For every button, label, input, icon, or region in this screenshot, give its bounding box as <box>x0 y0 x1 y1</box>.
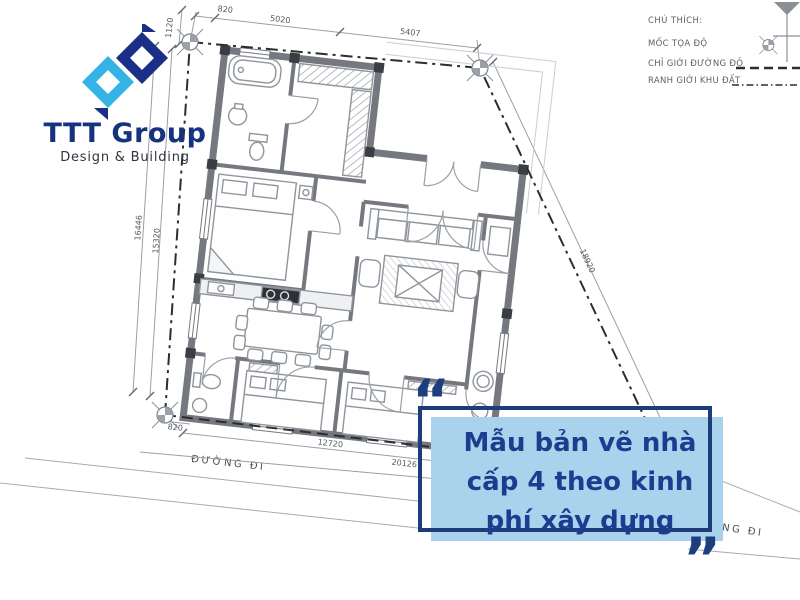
dim-bottom-12720: 12720 <box>317 438 343 450</box>
dim-left-15320: 15320 <box>151 228 162 254</box>
toilet-icon <box>193 373 202 388</box>
dim-bottom-20126: 20126 <box>391 458 417 470</box>
dashed-line-icon <box>722 59 800 77</box>
legend: CHÚ THÍCH: MỐC TỌA ĐỘ CHỈ GIỚI ĐƯỜNG ĐỎ … <box>646 12 800 88</box>
survey-marker-icon <box>722 36 800 54</box>
dim-bottom-820: 820 <box>167 422 183 433</box>
brand-tagline: Design & Building <box>40 150 210 165</box>
armchair-icon <box>457 270 480 299</box>
house-plan <box>178 24 556 460</box>
dining-table-icon <box>244 308 322 354</box>
dash-dot-line-icon <box>722 76 800 94</box>
open-quote-icon: “ <box>412 372 450 430</box>
dim-top-5020: 5020 <box>270 14 291 25</box>
toilet-icon <box>249 133 268 142</box>
close-quote-icon: ” <box>683 530 721 588</box>
dim-right-18920: 18920 <box>578 248 597 275</box>
dim-top-820: 820 <box>217 4 233 15</box>
page: ĐƯỜNG ĐI ĐƯỜNG ĐI <box>0 0 800 600</box>
armchair-icon <box>358 259 381 288</box>
dim-left-16446: 16446 <box>133 215 144 241</box>
dim-top-5407: 5407 <box>400 27 421 38</box>
cabinet-icon <box>488 226 511 256</box>
ttt-group-logo-icon <box>60 24 190 120</box>
legend-title: CHÚ THÍCH: <box>648 16 703 26</box>
quote-text: Mẫu bản vẽ nhà cấp 4 theo kinh phí xây d… <box>448 424 712 541</box>
brand-name: TTT Group <box>40 118 210 149</box>
sink-icon <box>192 398 207 413</box>
legend-item-moc-toa-do: MỐC TỌA ĐỘ <box>648 39 707 49</box>
